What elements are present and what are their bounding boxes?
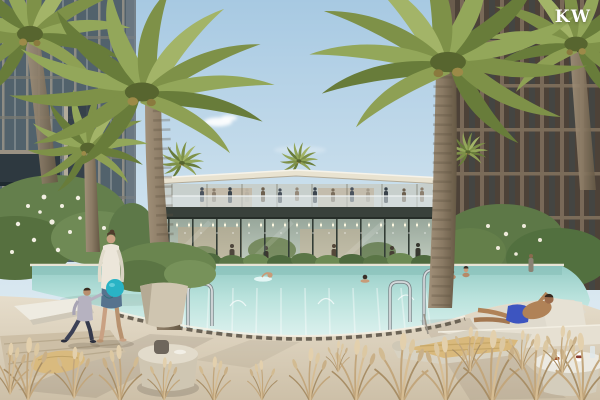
table-ornament — [154, 340, 169, 354]
scene-canvas — [0, 0, 600, 400]
rooftop-terrace — [156, 170, 445, 208]
side-table — [137, 340, 199, 397]
watermark-logo: KW — [555, 7, 592, 27]
balloon — [106, 279, 124, 297]
terrace-glass-railing — [158, 196, 445, 207]
standing-person-far — [529, 254, 534, 272]
pool-courtyard-rendering: KW — [0, 0, 600, 400]
drinking-glass — [590, 346, 595, 358]
